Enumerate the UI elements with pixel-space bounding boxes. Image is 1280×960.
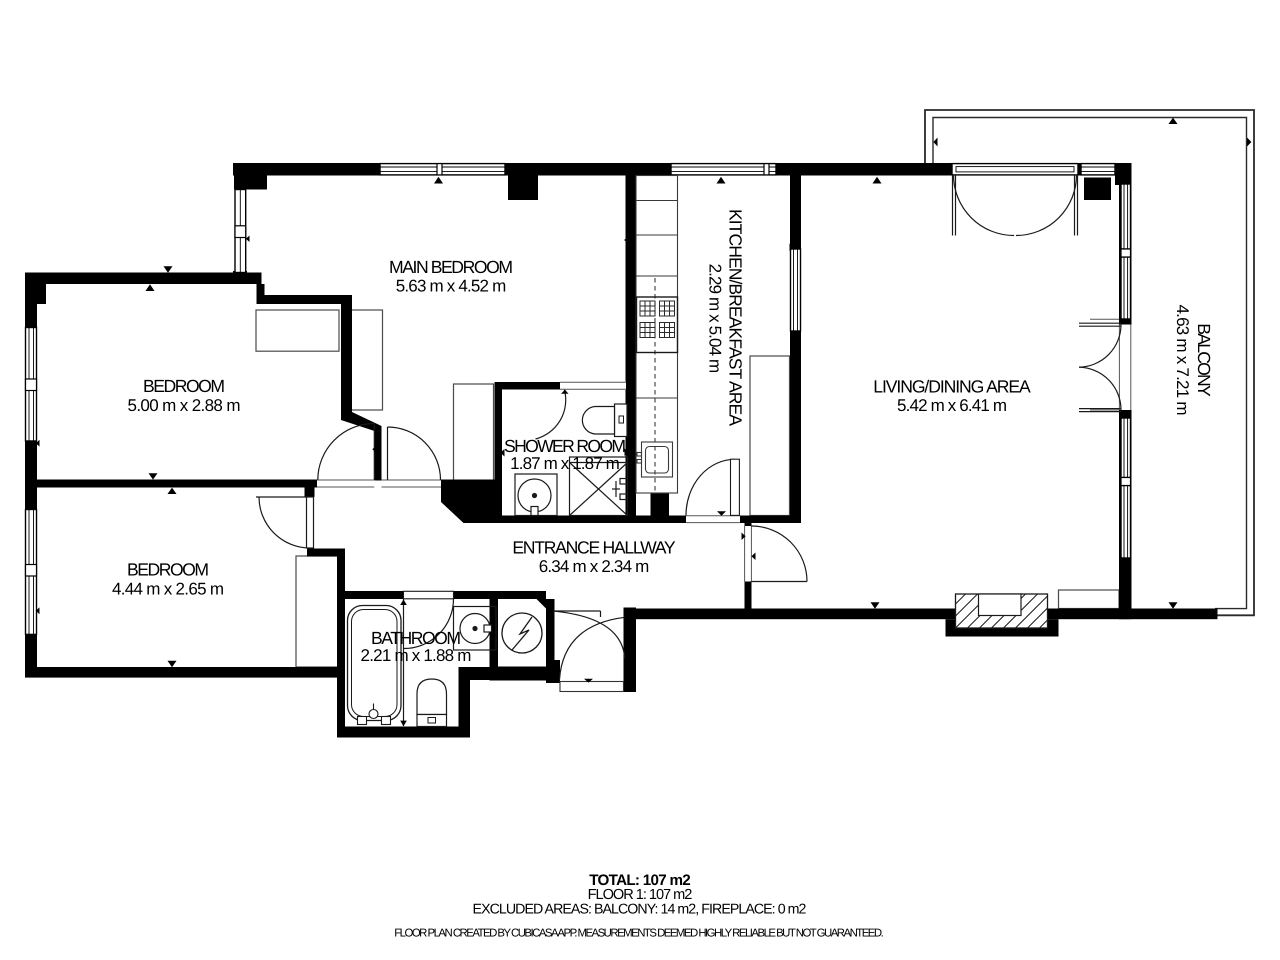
svg-text:5.00 m x 2.88 m: 5.00 m x 2.88 m <box>128 396 241 415</box>
svg-text:LIVING/DINING AREA: LIVING/DINING AREA <box>873 377 1031 397</box>
svg-text:4.44 m x 2.65 m: 4.44 m x 2.65 m <box>112 580 224 599</box>
svg-text:1.87 m x 1.87 m: 1.87 m x 1.87 m <box>510 454 620 473</box>
svg-text:BATHROOM: BATHROOM <box>371 628 461 648</box>
svg-text:BEDROOM: BEDROOM <box>143 376 225 396</box>
svg-text:5.42 m x 6.41 m: 5.42 m x 6.41 m <box>897 396 1007 415</box>
svg-text:6.34 m x 2.34 m: 6.34 m x 2.34 m <box>539 557 650 576</box>
svg-text:MAIN BEDROOM: MAIN BEDROOM <box>389 257 513 277</box>
svg-text:BALCONY: BALCONY <box>1194 323 1214 397</box>
svg-text:KITCHEN/BREAKFAST AREA: KITCHEN/BREAKFAST AREA <box>726 209 746 426</box>
svg-text:2.29 m x 5.04 m: 2.29 m x 5.04 m <box>706 264 725 374</box>
svg-text:2.21 m x 1.88 m: 2.21 m x 1.88 m <box>361 646 472 665</box>
svg-text:ENTRANCE HALLWAY: ENTRANCE HALLWAY <box>512 538 676 558</box>
svg-text:FLOOR PLAN CREATED BY CUBICASA: FLOOR PLAN CREATED BY CUBICASA APP. MEAS… <box>394 927 884 939</box>
svg-text:5.63 m x 4.52 m: 5.63 m x 4.52 m <box>396 276 507 295</box>
svg-text:BEDROOM: BEDROOM <box>127 560 209 580</box>
svg-text:EXCLUDED AREAS: BALCONY: 14 m2: EXCLUDED AREAS: BALCONY: 14 m2, FIREPLAC… <box>473 901 807 917</box>
svg-text:4.63 m x 7.21 m: 4.63 m x 7.21 m <box>1173 305 1192 416</box>
